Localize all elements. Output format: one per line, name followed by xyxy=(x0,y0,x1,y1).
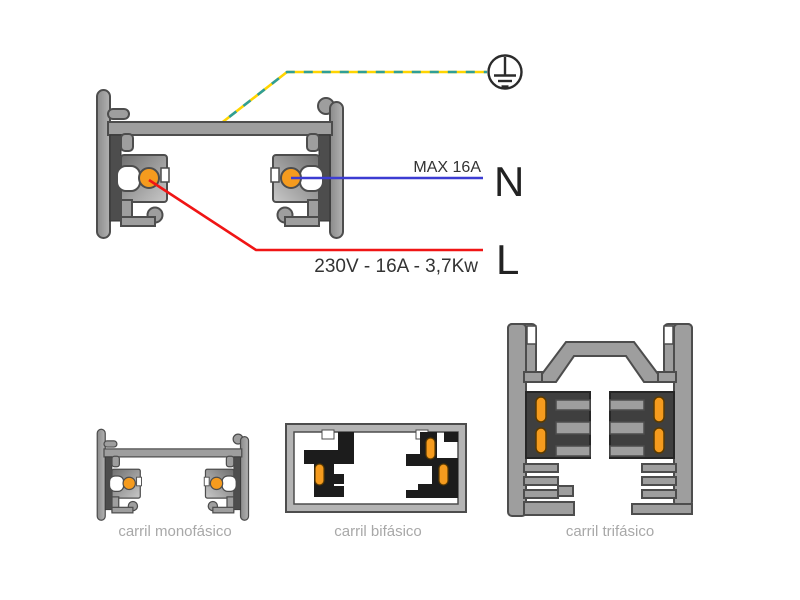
track-trifasico xyxy=(508,324,692,516)
max-current-label: MAX 16A xyxy=(413,159,481,176)
track-wiring-diagram: MAX 16A N 230V - 16A - 3,7Kw L carril mo… xyxy=(0,0,800,600)
phase-terminal-label: L xyxy=(496,236,519,283)
bifasico-conductor-right-top xyxy=(426,438,435,459)
earth-wire xyxy=(215,72,487,128)
track-bifasico xyxy=(286,424,466,512)
neutral-terminal-label: N xyxy=(494,158,524,205)
caption-monofasico: carril monofásico xyxy=(118,523,231,540)
earth-ground-icon xyxy=(489,56,522,89)
trifasico-conductor-right-top xyxy=(654,397,664,422)
main-track-cross-section xyxy=(97,90,343,238)
caption-trifasico: carril trifásico xyxy=(566,523,654,540)
diagram-canvas: MAX 16A N 230V - 16A - 3,7Kw L carril mo… xyxy=(0,0,800,600)
trifasico-insulator-left xyxy=(526,392,590,458)
track-monofasico xyxy=(97,429,248,520)
trifasico-conductor-right-bottom xyxy=(654,428,664,453)
trifasico-conductor-left-top xyxy=(536,397,546,422)
phase-spec-label: 230V - 16A - 3,7Kw xyxy=(314,256,478,277)
bifasico-conductor-left xyxy=(315,464,324,485)
trifasico-insulator-right xyxy=(610,392,674,458)
bifasico-conductor-right-mid xyxy=(439,464,448,485)
trifasico-conductor-left-bottom xyxy=(536,428,546,453)
caption-bifasico: carril bifásico xyxy=(334,523,422,540)
